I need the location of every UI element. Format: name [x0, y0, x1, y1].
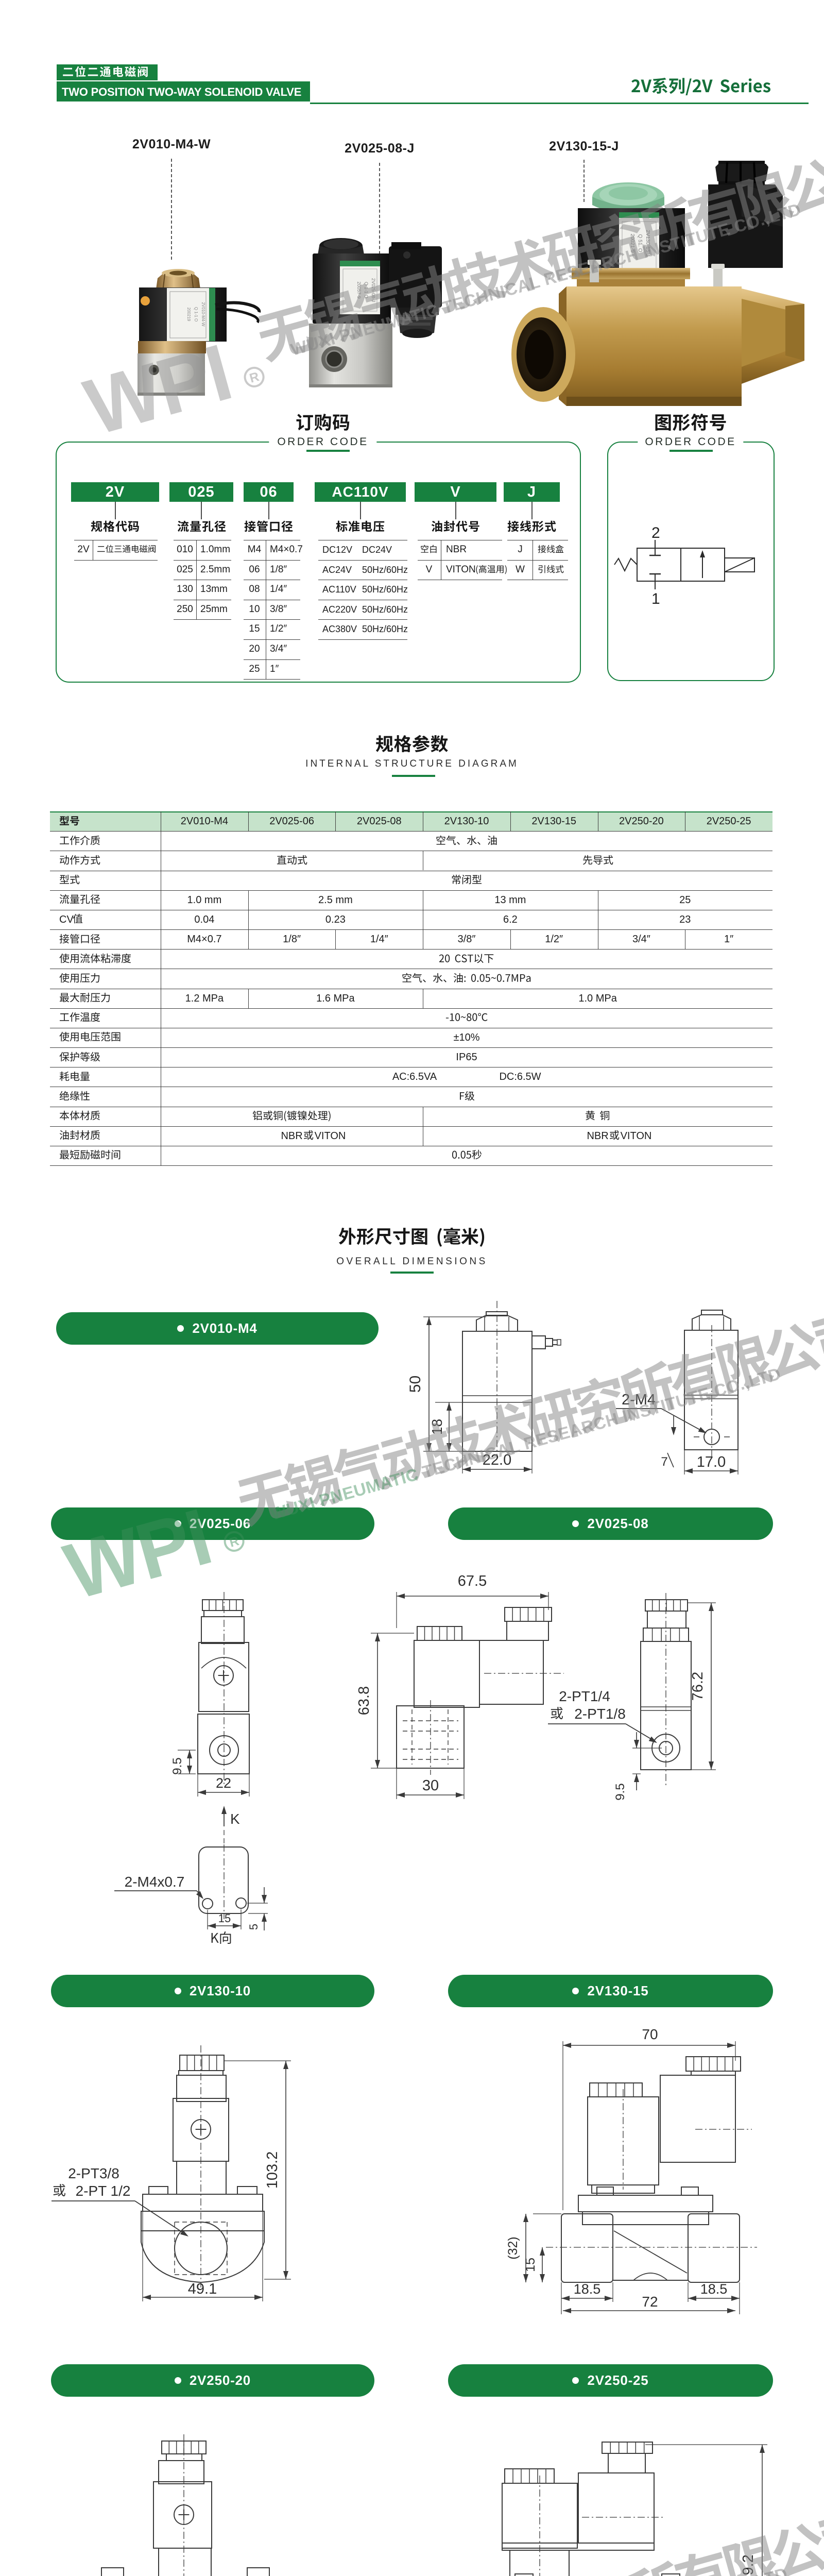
svg-text:30: 30	[422, 1777, 439, 1794]
svg-text:2-PT3/8: 2-PT3/8	[68, 2165, 119, 2181]
svg-text:22.0: 22.0	[483, 1452, 511, 1468]
svg-text:2-M4: 2-M4	[622, 1392, 656, 1408]
svg-text:76.2: 76.2	[690, 1672, 706, 1701]
svg-text:15: 15	[523, 2258, 538, 2272]
svg-text:50: 50	[407, 1376, 424, 1393]
svg-text:67.5: 67.5	[458, 1573, 487, 1589]
svg-text:9.5: 9.5	[613, 1783, 627, 1800]
svg-text:22: 22	[216, 1775, 231, 1791]
svg-text:17.0: 17.0	[697, 1454, 726, 1470]
svg-text:20057-9: 20057-9	[356, 281, 362, 298]
svg-text:7: 7	[661, 1455, 667, 1469]
svg-text:72: 72	[642, 2294, 658, 2310]
svg-text:2V130-15-J: 2V130-15-J	[645, 230, 650, 257]
svg-text:9.5: 9.5	[170, 1757, 184, 1774]
svg-text:Q 1-1 O: Q 1-1 O	[194, 307, 198, 321]
svg-text:18.5: 18.5	[574, 2281, 601, 2297]
svg-text:63.8: 63.8	[356, 1686, 372, 1715]
svg-text:70: 70	[642, 2026, 658, 2042]
svg-text:15: 15	[218, 1912, 231, 1925]
svg-text:18.5: 18.5	[700, 2281, 728, 2297]
svg-text:Q 1-1 O: Q 1-1 O	[364, 282, 369, 298]
svg-text:18: 18	[429, 1419, 445, 1435]
svg-text:119.2: 119.2	[740, 2554, 757, 2576]
svg-text:K: K	[230, 1811, 240, 1827]
svg-text:2-PT1/4: 2-PT1/4	[559, 1688, 610, 1704]
svg-text:200219: 200219	[186, 308, 191, 321]
svg-text:49.1: 49.1	[188, 2281, 217, 2297]
svg-text:5: 5	[247, 1924, 260, 1930]
svg-text:2V010-M4-W: 2V010-M4-W	[201, 302, 205, 327]
svg-text:103.2: 103.2	[264, 2151, 281, 2189]
svg-text:2-M4x0.7: 2-M4x0.7	[125, 1874, 185, 1890]
svg-text:(32): (32)	[506, 2236, 520, 2259]
svg-text:1: 1	[651, 590, 660, 607]
svg-text:2: 2	[651, 524, 660, 541]
svg-text:20021-9: 20021-9	[629, 234, 635, 253]
svg-text:Q 51. O: Q 51. O	[637, 234, 643, 252]
svg-text:2-PT 1/2: 2-PT 1/2	[76, 2183, 131, 2199]
svg-text:2V025-08-J: 2V025-08-J	[371, 278, 376, 302]
